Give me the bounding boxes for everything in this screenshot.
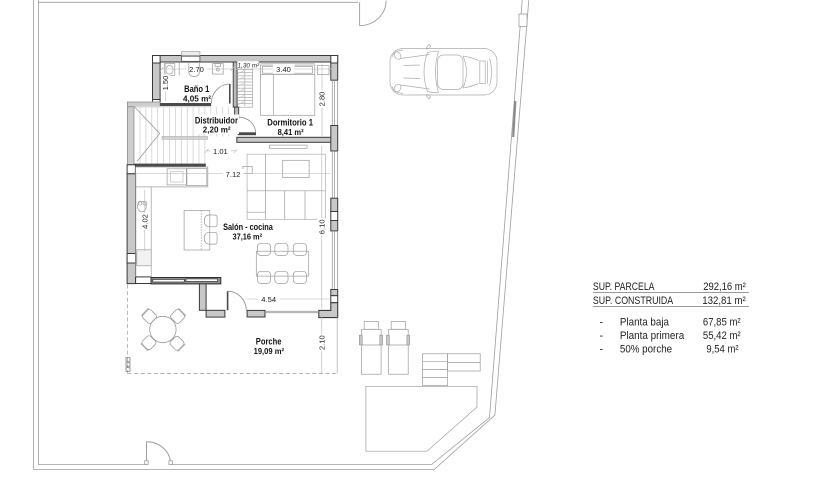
svg-text:SUP. CONSTRUIDA: SUP. CONSTRUIDA <box>593 295 674 307</box>
svg-text:Dormitorio 1: Dormitorio 1 <box>267 118 313 128</box>
svg-text:2.10: 2.10 <box>317 335 326 350</box>
svg-text:2,20 m²: 2,20 m² <box>203 126 231 135</box>
svg-text:3.40: 3.40 <box>276 65 291 74</box>
svg-text:Planta baja: Planta baja <box>620 317 669 329</box>
svg-text:4.02: 4.02 <box>140 214 149 229</box>
svg-text:50% porche: 50% porche <box>620 344 672 356</box>
svg-text:Planta primera: Planta primera <box>620 330 684 342</box>
svg-text:-: - <box>600 317 604 329</box>
svg-text:Baño 1: Baño 1 <box>184 84 209 94</box>
svg-text:292,16 m²: 292,16 m² <box>703 281 746 293</box>
svg-text:4,05 m²: 4,05 m² <box>183 95 211 104</box>
svg-text:19,09 m²: 19,09 m² <box>254 347 285 356</box>
svg-text:Distribuidor: Distribuidor <box>195 115 238 125</box>
svg-text:6.10: 6.10 <box>317 219 326 234</box>
svg-text:SUP. PARCELA: SUP. PARCELA <box>593 281 655 293</box>
svg-text:-: - <box>600 330 604 342</box>
svg-text:1.01: 1.01 <box>213 147 228 156</box>
svg-text:67,85 m²: 67,85 m² <box>703 317 741 329</box>
svg-text:1,30 m²: 1,30 m² <box>238 62 261 69</box>
svg-text:-: - <box>600 344 604 356</box>
svg-text:Salón - cocina: Salón - cocina <box>223 222 273 232</box>
svg-text:Porche: Porche <box>256 336 282 346</box>
svg-text:37,16 m²: 37,16 m² <box>233 232 263 241</box>
svg-text:7.12: 7.12 <box>226 170 241 179</box>
svg-text:9,54 m²: 9,54 m² <box>706 344 739 356</box>
svg-text:132,81 m²: 132,81 m² <box>702 295 746 307</box>
svg-text:8,41 m²: 8,41 m² <box>278 128 304 137</box>
svg-text:55,42 m²: 55,42 m² <box>703 330 741 342</box>
svg-text:2.70: 2.70 <box>189 65 204 74</box>
svg-text:2.80: 2.80 <box>318 92 327 107</box>
svg-text:1.50: 1.50 <box>161 76 170 91</box>
svg-text:4.54: 4.54 <box>261 295 276 304</box>
